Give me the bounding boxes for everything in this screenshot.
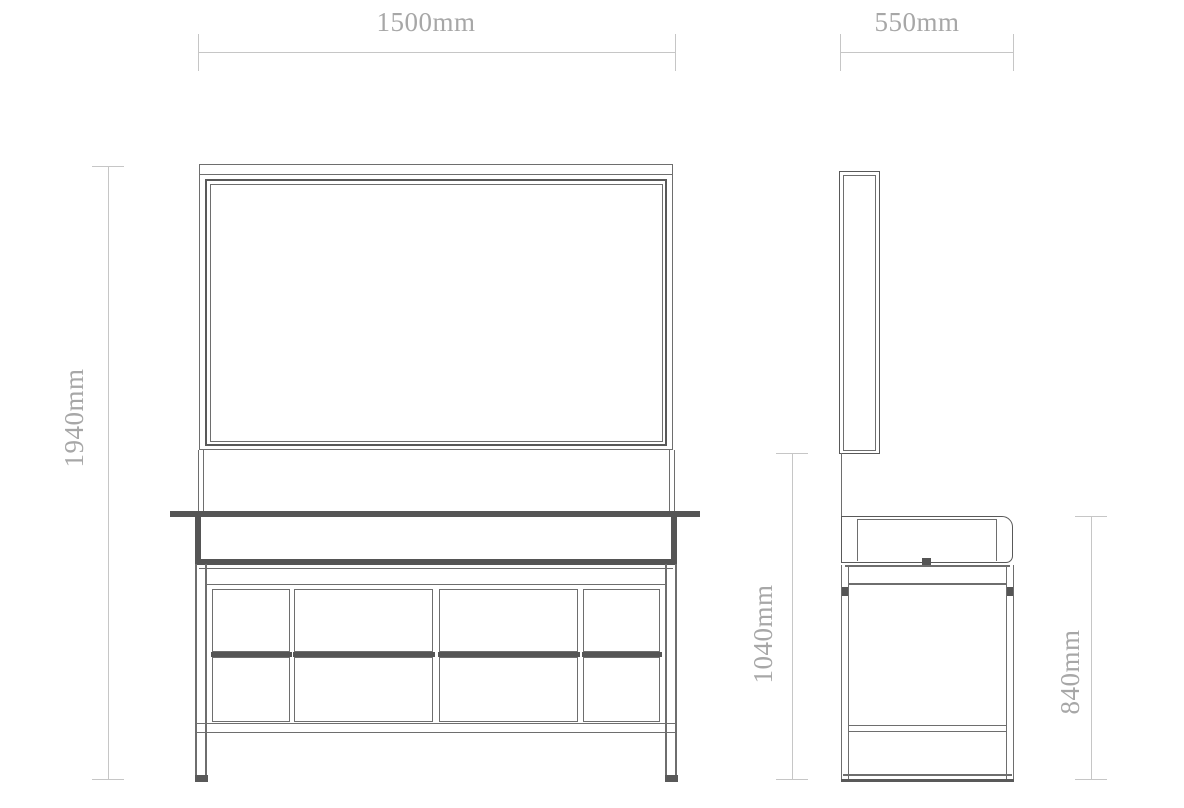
dimension-label-front-width: 1500mm [326, 6, 526, 38]
side-back-line [841, 453, 843, 516]
dimension-label-side-depth: 550mm [817, 6, 1017, 38]
bottom-shelf [195, 723, 677, 734]
side-leg-front [1006, 565, 1015, 782]
side-base-edge [841, 779, 1015, 782]
mirror-top-rail-line [199, 174, 673, 176]
mirror-inner-frame [210, 184, 663, 442]
dimension-tick [776, 453, 808, 454]
dimension-label-mirror-bottom-height: 1040mm [747, 564, 779, 704]
cabinet-top-rail [199, 568, 673, 570]
cabinet-mid-rail [207, 584, 665, 586]
compartment-r1c4 [583, 589, 660, 652]
side-shelf-line-2 [849, 731, 1006, 733]
dimension-line-side-depth [840, 52, 1013, 53]
side-top-rail [845, 565, 1010, 567]
side-shelf-line-1 [849, 725, 1006, 727]
dimension-tick [92, 166, 124, 167]
dimension-tick [840, 34, 841, 71]
side-bottom-rail [843, 774, 1012, 776]
leg-foot-left [195, 775, 208, 782]
leg-foot-right [665, 775, 678, 782]
side-mirror-inner [843, 175, 877, 451]
dimension-tick [776, 779, 808, 780]
dimension-tick [92, 779, 124, 780]
dimension-label-overall-height: 1940mm [58, 348, 90, 488]
furniture-technical-drawing: 1500mm 550mm 1940mm 1040mm 840mm [0, 0, 1184, 808]
dimension-tick [675, 34, 676, 71]
compartment-r2c4 [583, 657, 660, 722]
compartment-r2c2 [294, 657, 433, 722]
dimension-tick [1075, 516, 1107, 517]
compartment-r1c1 [212, 589, 290, 652]
compartment-r2c1 [212, 657, 290, 722]
cabinet-leg-left [195, 564, 207, 776]
dimension-line-counter-height [1091, 516, 1092, 779]
side-mid-rail [849, 583, 1006, 585]
dimension-tick [1075, 779, 1107, 780]
compartment-r2c3 [439, 657, 578, 722]
dimension-label-counter-height: 840mm [1054, 602, 1086, 742]
apron-drawer [195, 517, 677, 565]
cabinet-leg-right [665, 564, 677, 776]
dimension-tick [1013, 34, 1014, 71]
support-post-right [669, 450, 675, 511]
side-countertop-inner [857, 519, 997, 561]
side-leg-back [841, 565, 850, 782]
dimension-line-mirror-bottom-height [792, 453, 793, 779]
compartment-r1c2 [294, 589, 433, 652]
compartment-r1c3 [439, 589, 578, 652]
dimension-line-overall-height [108, 166, 109, 780]
dimension-line-front-width [198, 52, 675, 53]
support-post-left [198, 450, 204, 511]
dimension-tick [198, 34, 199, 71]
